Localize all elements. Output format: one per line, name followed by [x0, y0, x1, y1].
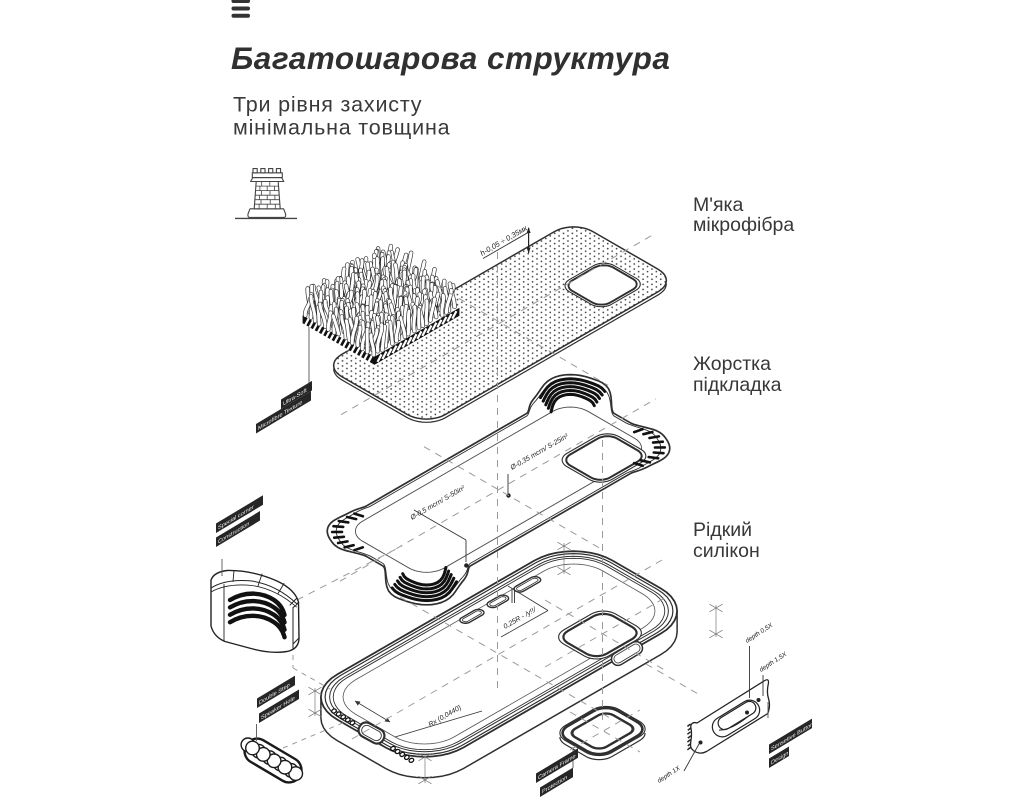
svg-text:Рідкий: Рідкий [693, 519, 752, 541]
svg-text:Microfibre Texture: Microfibre Texture [258, 399, 303, 432]
svg-text:підкладка: підкладка [693, 374, 782, 396]
svg-text:depth 0,5X: depth 0,5X [744, 622, 774, 645]
svg-text:мікрофібра: мікрофібра [693, 214, 794, 236]
svg-text:Три рівня захисту: Три рівня захисту [233, 93, 422, 117]
svg-text:силікон: силікон [693, 540, 760, 562]
svg-text:Жорстка: Жорстка [693, 353, 771, 375]
svg-text:depth 1,5X: depth 1,5X [758, 651, 788, 674]
svg-text:мінімальна товщина: мінімальна товщина [233, 116, 450, 140]
svg-text:depth 1X: depth 1X [656, 764, 682, 784]
svg-text:Sensetive Button: Sensetive Button [771, 721, 813, 753]
svg-text:Багатошарова структура: Багатошарова структура [231, 40, 670, 76]
svg-text:М'яка: М'яка [693, 194, 743, 216]
